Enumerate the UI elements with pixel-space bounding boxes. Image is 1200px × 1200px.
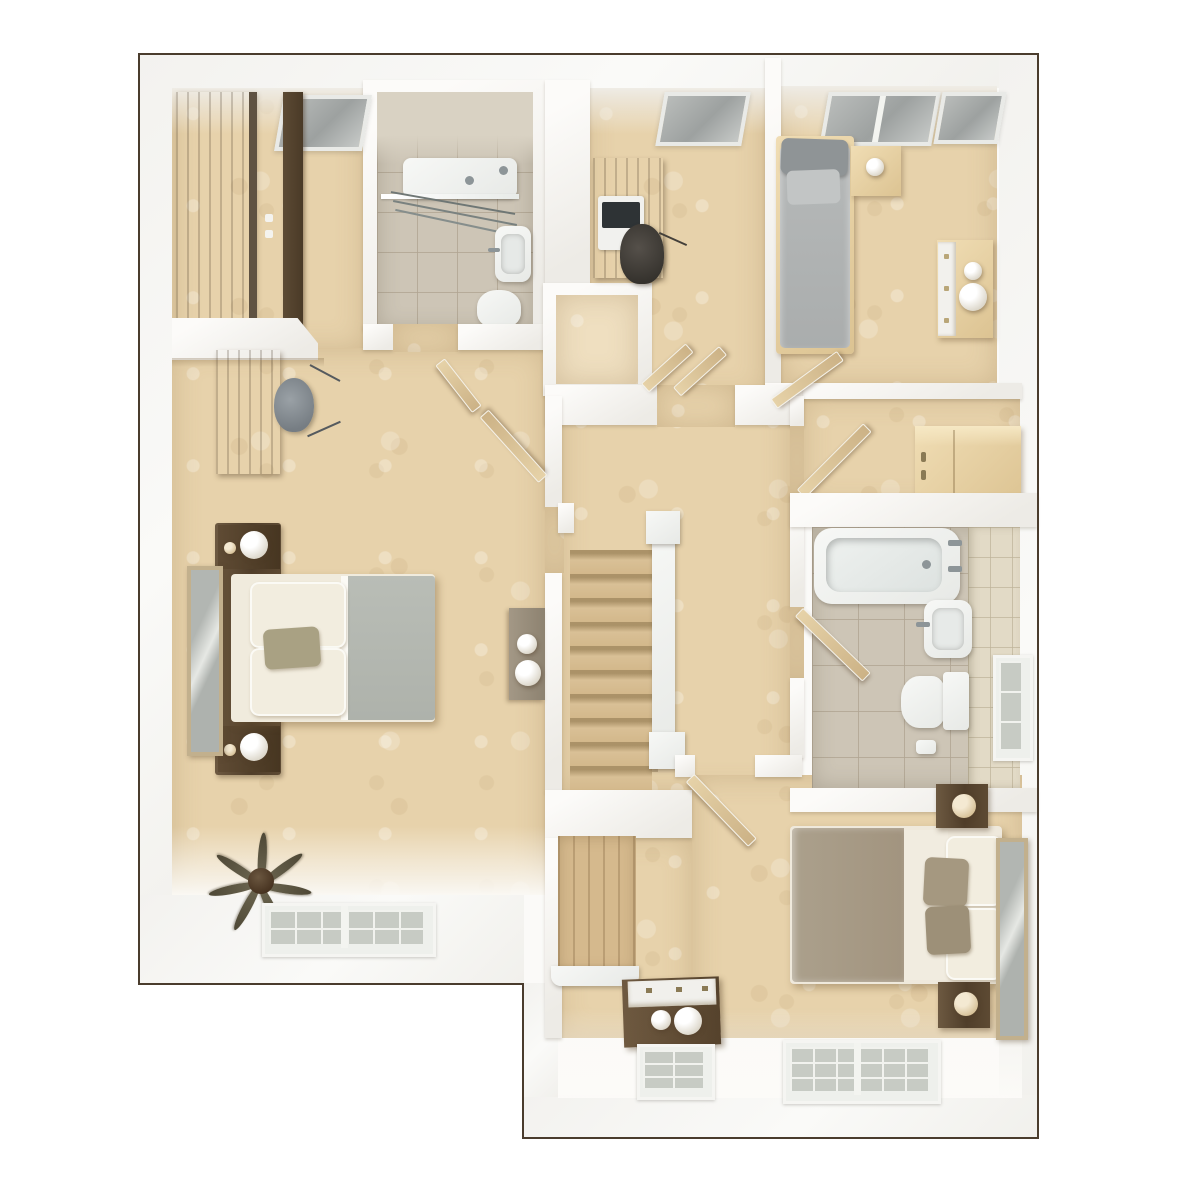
wall-bathroom-bottom [790,788,1037,812]
en-suite-basin-bowl [501,234,525,274]
bb-dresser-lamp-small [651,1010,671,1030]
stair-tread [570,718,652,742]
bb-window-mullion [854,1043,861,1095]
master-chest-lamp-large [515,660,541,686]
master-chest-lamp-small [517,634,537,654]
bathroom-basin-bowl [932,608,964,650]
wall-bathroom-top [790,493,1037,527]
toilet-roll [916,740,936,754]
outline-right [1037,53,1039,1139]
outer-band-left [140,55,172,983]
master-office-chair [274,378,314,432]
store-cupboard-handle [921,452,926,462]
stair-tread [570,646,652,670]
stair-tread [570,694,652,718]
wardrobe-handle [265,214,273,222]
shower-head-icon [465,176,474,185]
wall-central-top [545,80,590,285]
outer-band-bottom [524,1095,1037,1137]
stair-tread [570,622,652,646]
bathroom-window-panes [999,661,1021,749]
floor-plan-render [0,0,1200,1200]
master-side-chest [509,608,545,700]
wall-landing-right-upper [790,396,804,426]
roof-window-br4-small [933,92,1006,144]
master-lamp-top [240,531,268,559]
br4-dresser-bowl-small [964,262,982,280]
wall-bedroom-bottom-pier [675,755,695,777]
master-window-mullion [341,906,348,948]
study-chair [620,224,664,284]
laptop-screen [602,202,640,228]
bathroom-window [993,655,1033,761]
bb-dresser-drawers [628,978,717,1007]
roof-window-study [655,92,751,146]
master-decor-top [224,542,236,554]
bb-lamp-bottom [954,992,978,1016]
wall-stairwell-south [545,790,692,838]
master-window [262,903,436,957]
master-lamp-bottom [240,733,268,761]
en-suite-toilet [477,290,521,328]
bathroom-tap-icon [916,622,930,627]
master-desk [216,350,280,474]
wall-landing-left-upper [545,396,562,507]
bathroom-toilet-cistern [943,672,969,730]
plant-pot [248,868,274,894]
outline-bottom [522,1137,1039,1139]
shower-tray [403,158,517,198]
bathtub-taps-icon [948,566,962,572]
master-accent-cushion [263,626,322,670]
newel-post-top [646,511,680,544]
bb-bed-duvet [792,828,904,982]
master-bed-throw [348,576,435,720]
landing-opening-floor [657,385,735,427]
single-bed-cushion [786,169,840,205]
wall-landing-left-lower [545,573,562,792]
bb-window-small [637,1044,715,1100]
stair-handrail [652,518,675,766]
bb-drawer-knob [646,988,652,993]
outline-bottom-left [138,983,524,985]
bb-cushion-bottom [925,905,971,955]
store-cupboard-top-face [915,426,1021,446]
en-suite-tap-icon [488,248,500,252]
wall-bedroom-bottom-top [755,755,802,777]
stair-tread [570,766,652,792]
stair-bulkhead [558,836,636,972]
stair-tread [570,742,652,766]
bb-drawer-knob [676,987,682,992]
master-decor-bottom [224,744,236,756]
br4-dresser-bowl-large [959,283,987,311]
master-wardrobe-front-edge [249,92,257,320]
en-suite-door-threshold [393,324,458,352]
br4-drawer-knob [944,318,949,323]
bb-lamp-top [952,794,976,818]
br4-drawer-knob [944,286,949,291]
store-cupboard-handle [921,470,926,480]
wardrobe-divider-panel [283,92,303,345]
airing-cupboard-floor [556,295,638,384]
bb-leaning-mirror [996,838,1028,1040]
bathroom-toilet-bowl [901,676,945,728]
bathtub-drain-icon [922,560,931,569]
roof-window-divider [872,96,886,142]
br4-drawer-knob [944,254,949,259]
en-suite-ceiling-slope [377,92,533,164]
wardrobe-handle [265,230,273,238]
en-suite-bottom-wall-left [363,324,393,350]
bb-cushion-top [923,857,969,907]
en-suite-bottom-wall-right [458,324,545,350]
master-wardrobe [176,92,255,320]
stair-tread [570,598,652,622]
wall-master-door-jamb [558,503,574,533]
stair-tread [570,574,652,598]
bb-window-large [783,1040,941,1104]
stair-tread [570,670,652,694]
shower-valve-icon [499,166,508,175]
master-leaning-mirror [187,566,223,756]
bb-dresser-lamp-large [674,1007,702,1035]
br4-bedside-lamp [866,158,884,176]
wall-landing-right-lower [790,678,804,758]
bathtub-taps-icon [948,540,962,546]
bb-window-small-panes [643,1050,703,1088]
stair-tread [570,550,652,574]
bb-drawer-knob [702,986,708,991]
